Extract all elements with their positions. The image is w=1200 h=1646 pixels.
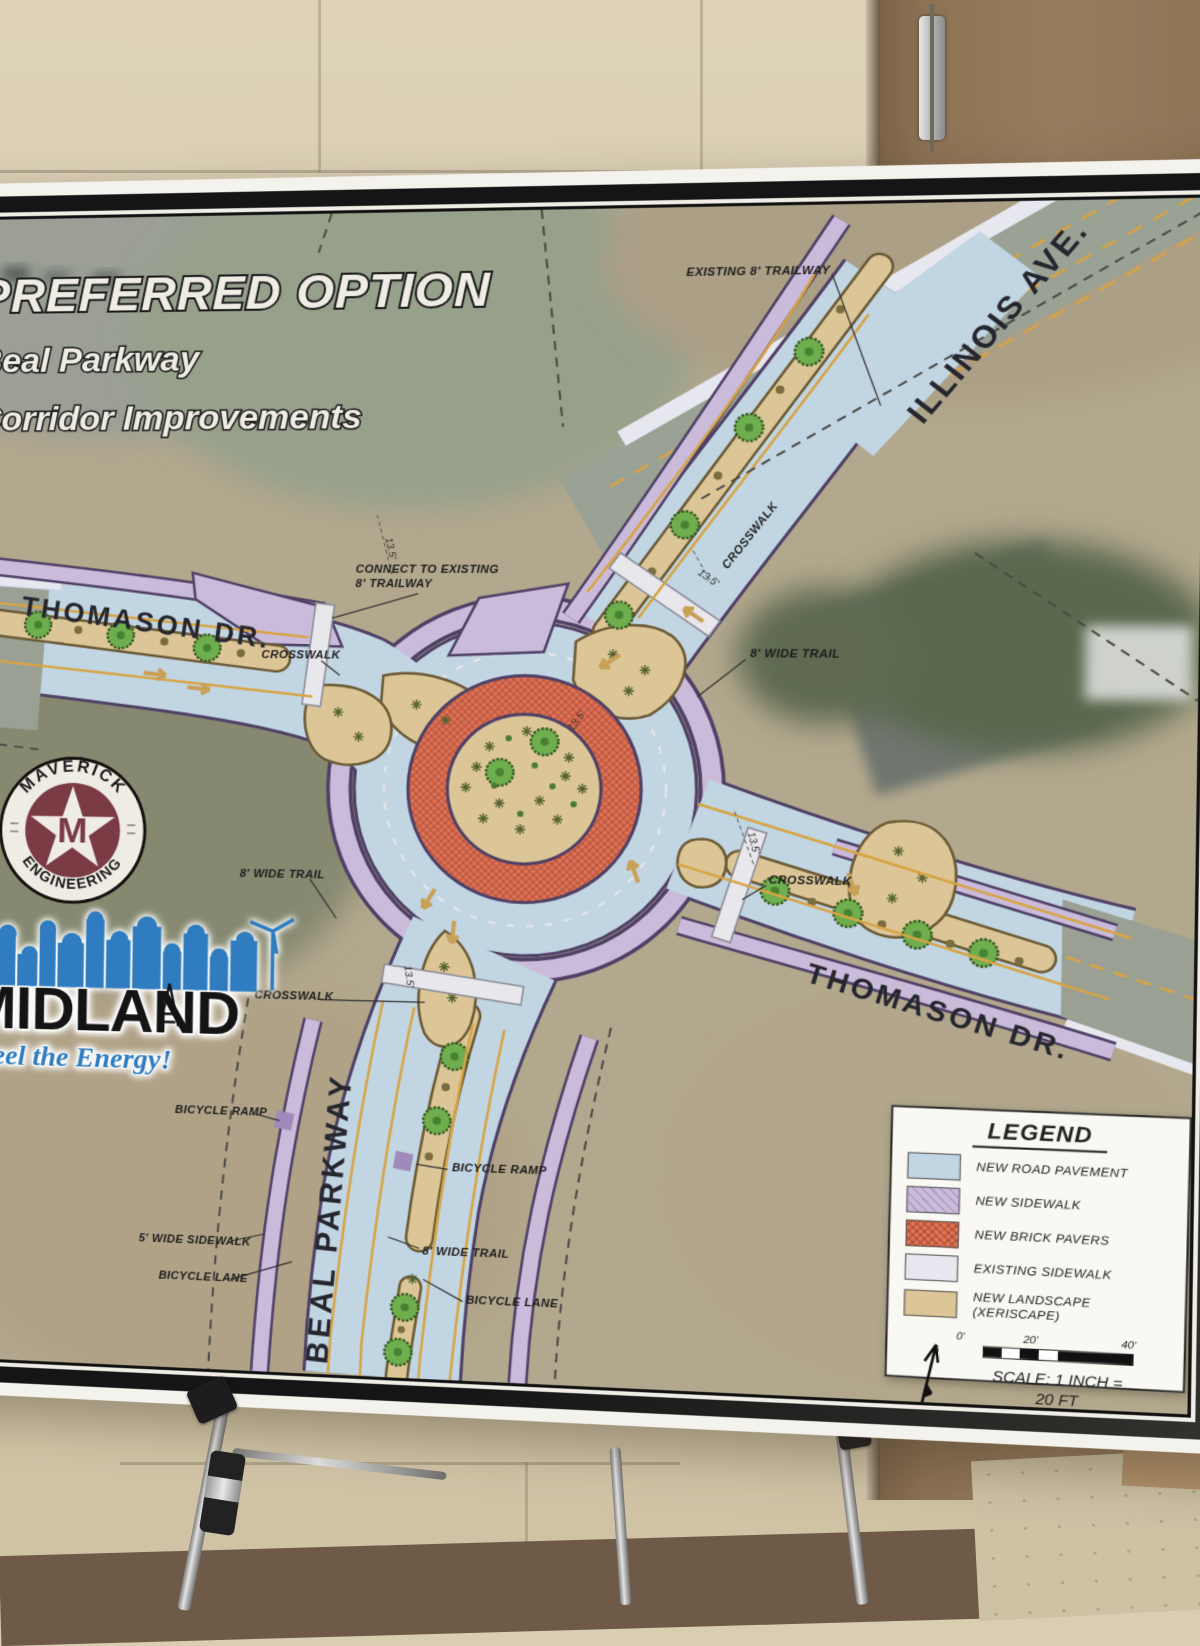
legend-item-brick: NEW BRICK PAVERS [905,1220,1171,1259]
label-connect-2: 8' TRAILWAY [355,578,433,591]
label-crosswalk-s: CROSSWALK [254,989,334,1003]
tree [531,728,559,755]
label-crosswalk-w: CROSSWALK [261,649,341,662]
legend-item-road: NEW ROAD PAVEMENT [907,1152,1173,1190]
maverick-monogram: M [57,810,88,851]
site-plan-map: 13.5' 13.5' 13.5' 13.5' 13.5' EXISTI [0,198,1200,1415]
legend-panel: LEGEND NEW ROAD PAVEMENT NEW SIDEWALK NE… [884,1105,1192,1393]
swatch-brick-pavers [905,1220,959,1249]
swatch-existing-sidewalk [905,1253,959,1282]
label-wide-trail-ne: 8' WIDE TRAIL [750,648,840,661]
poster-subtitle-2: Corridor Improvements [0,397,362,438]
poster-title: PREFERRED OPTION [0,262,491,322]
midland-name: MIDLAND [0,972,240,1047]
scale-bar: 0' 20' 40' SCALE: 1 INCH = 20 FT [948,1330,1168,1414]
label-connect-1: CONNECT TO EXISTING [356,564,499,577]
bicycle-ramp-pad [393,1151,414,1172]
label-existing-trailway: EXISTING 8' TRAILWAY [686,264,831,279]
legend-title: LEGEND [972,1119,1107,1153]
wall-mortar-line [700,0,703,172]
wall-mortar-line [318,0,321,172]
label-wide-trail-s: 8' WIDE TRAIL [240,867,325,881]
legend-item-landscape: NEW LANDSCAPE (XERISCAPE) [904,1287,1170,1331]
swatch-landscape [904,1289,958,1318]
swatch-new-sidewalk [906,1186,960,1215]
label-crosswalk-se: CROSSWALK [768,874,852,888]
midland-tagline: Feel the Energy! [0,1039,172,1076]
door-hinge [919,16,945,140]
legend-item-existing-sidewalk: EXISTING SIDEWALK [905,1253,1171,1293]
poster-subtitle-1: Beal Parkway [0,340,202,381]
swatch-new-road [907,1152,961,1181]
legend-item-sidewalk: NEW SIDEWALK [906,1186,1172,1225]
tree [486,759,514,786]
poster-board: 13.5' 13.5' 13.5' 13.5' 13.5' EXISTI [0,158,1200,1455]
